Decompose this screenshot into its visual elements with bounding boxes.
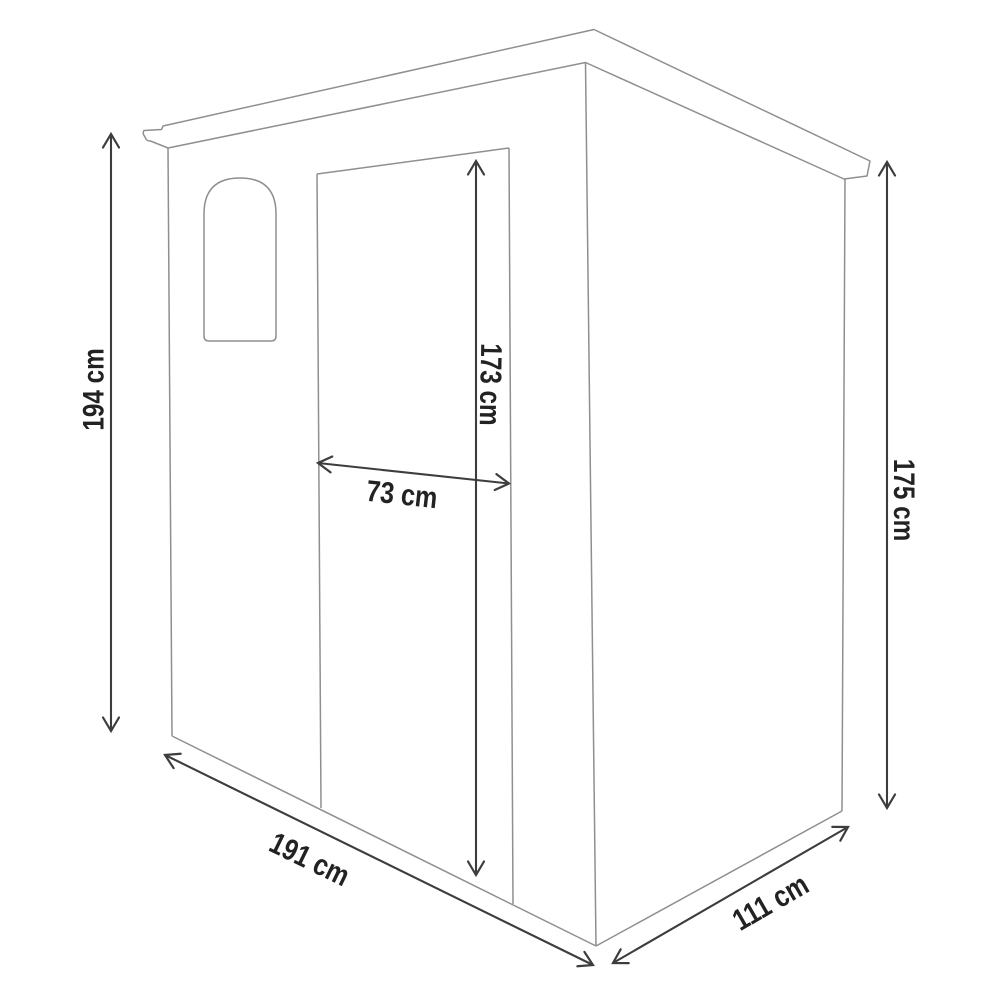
svg-text:194 cm: 194 cm	[76, 348, 110, 430]
svg-text:111 cm: 111 cm	[727, 867, 815, 937]
svg-text:73 cm: 73 cm	[365, 474, 440, 515]
svg-text:191 cm: 191 cm	[264, 825, 355, 892]
svg-text:175 cm: 175 cm	[887, 459, 921, 541]
svg-text:173 cm: 173 cm	[473, 343, 508, 426]
